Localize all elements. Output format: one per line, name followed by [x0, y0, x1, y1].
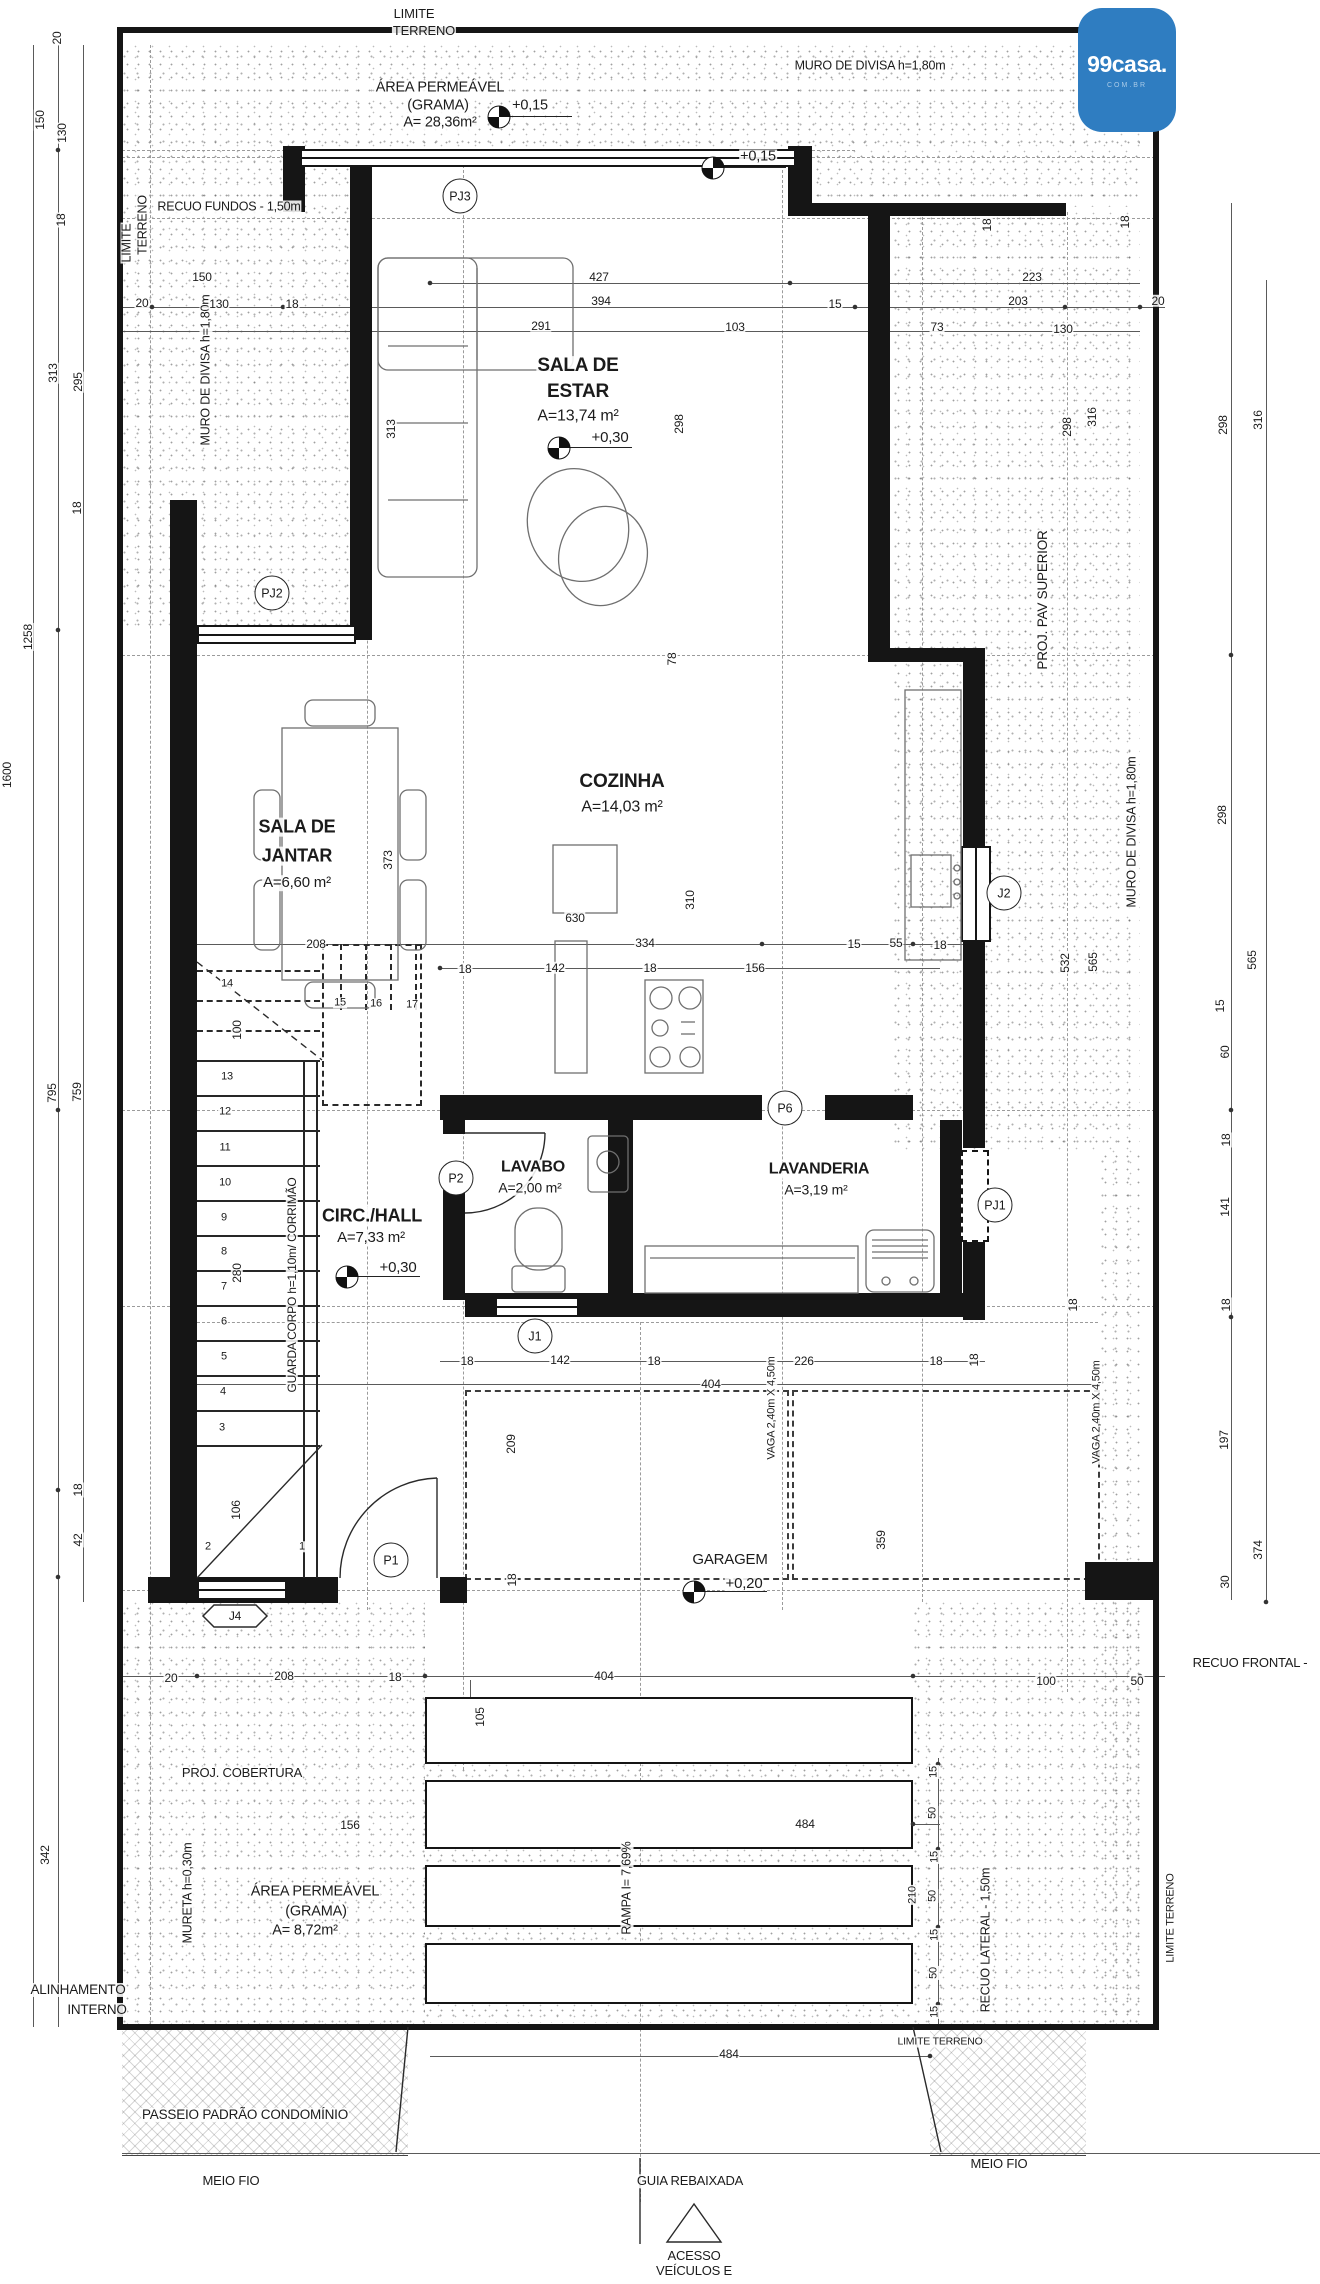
mureta: MURETA h=0,30m	[182, 1842, 195, 1945]
level-label: +0,20	[725, 1576, 764, 1592]
level-marker-tail	[570, 447, 632, 448]
stair-step-label: 17	[405, 999, 419, 1010]
level-marker-icon	[683, 1581, 706, 1604]
washer-icon	[866, 1230, 934, 1292]
level-marker-tail	[705, 1591, 767, 1592]
area-permeavel-top: (GRAMA)	[406, 98, 469, 113]
dimension-label: 18	[1067, 1298, 1079, 1313]
dimension-label: 18	[285, 298, 300, 310]
dimension-label: 130	[1052, 323, 1073, 335]
dimension-label: 18	[929, 1355, 944, 1367]
brand-name: 99casa.	[1087, 51, 1167, 78]
dimension-label: 50	[927, 1889, 938, 1903]
opening-tag-p6: P6	[768, 1091, 803, 1126]
dimension-label: 50	[927, 1806, 938, 1820]
dimension-label: 130	[208, 298, 229, 310]
dimension-label: 15	[928, 1765, 939, 1779]
level-label: +0,15	[739, 149, 777, 164]
dimension-label: 1600	[1, 761, 13, 789]
dimension-label: 298	[673, 413, 685, 434]
opening-tag-pj1: PJ1	[978, 1188, 1013, 1223]
stove-icon	[645, 980, 703, 1073]
stair-step-label: 15	[333, 997, 347, 1008]
dimension-label: 15	[929, 1928, 940, 1942]
dimension-label: 484	[794, 1818, 815, 1830]
dimension-label: 316	[1252, 409, 1264, 430]
dimension-label: 316	[1086, 406, 1098, 427]
dimension-label: 18	[643, 962, 658, 974]
dimension-label: 18	[1220, 1133, 1232, 1148]
room-circ-hall: CIRC./HALL	[321, 1207, 423, 1226]
alinhamento-interno: ALINHAMENTO	[29, 1983, 126, 1997]
dimension-label: 20	[51, 31, 63, 46]
dimension-label: 18	[968, 1353, 980, 1368]
opening-tag-pj3: PJ3	[443, 179, 478, 214]
room-cozinha-area: A=14,03 m²	[580, 800, 663, 817]
rug-icon	[513, 455, 643, 594]
guia-rebaixada: GUIA REBAIXADA	[636, 2174, 744, 2188]
stair-step-label: 6	[220, 1316, 228, 1327]
level-label: +0,30	[379, 1260, 418, 1276]
brand-tld: COM.BR	[1107, 82, 1147, 89]
stair-break-upper	[197, 962, 322, 1060]
dimension-label: 15	[847, 938, 862, 950]
dimension-label: 197	[1218, 1429, 1230, 1450]
dimension-label: 78	[666, 652, 678, 667]
floor-plan: 99casa. COM.BR LIMITETERRENOMURO DE DIVI…	[0, 0, 1320, 2284]
muro-divisa-top: MURO DE DIVISA h=1,80m	[794, 60, 947, 73]
dimension-label: 106	[230, 1499, 242, 1520]
dimension-label: 20	[1151, 295, 1166, 307]
stair-step-label: 7	[220, 1281, 228, 1292]
muro-divisa-left: MURO DE DIVISA h=1,80m	[200, 294, 213, 447]
acesso-veiculos: ACESSO	[667, 2249, 722, 2263]
dimension-label: 18	[506, 1573, 518, 1588]
sofa-icon	[378, 258, 573, 370]
access-triangle-icon	[667, 2204, 721, 2242]
stair-break-lower	[197, 1445, 322, 1578]
room-sala-estar: ESTAR	[546, 382, 610, 402]
area-permeavel-bottom: ÁREA PERMEÁVEL	[250, 1884, 381, 1899]
area-permeavel-bottom: (GRAMA)	[284, 1904, 347, 1919]
room-lavanderia: LAVANDERIA	[768, 1162, 871, 1179]
room-sala-jantar-area: A=6,60 m²	[262, 875, 332, 891]
dimension-label: 342	[39, 1844, 51, 1865]
stair-step-label: 8	[220, 1246, 228, 1257]
muro-divisa-right: MURO DE DIVISA h=1,80m	[1126, 756, 1139, 909]
dimension-label: 15	[828, 298, 843, 310]
dimension-label: 210	[907, 1885, 918, 1905]
dimension-label: 55	[889, 937, 904, 949]
area-permeavel-bottom: A= 8,72m²	[271, 1923, 339, 1938]
room-lavabo: LAVABO	[500, 1160, 566, 1177]
area-permeavel-top: ÁREA PERMEÁVEL	[375, 80, 506, 95]
dimension-label: 18	[55, 213, 67, 228]
kitchen-sink-icon	[911, 855, 951, 907]
opening-tag-p1: P1	[374, 1543, 409, 1578]
level-marker-tail	[358, 1276, 420, 1277]
dimension-label: 223	[1021, 271, 1042, 283]
meio-fio-right: MEIO FIO	[970, 2157, 1029, 2171]
stair-step-label: 13	[220, 1071, 234, 1082]
stair-step-label: 5	[220, 1351, 228, 1362]
dimension-label: 404	[593, 1670, 614, 1682]
dimension-label: 18	[1119, 215, 1131, 230]
level-marker-icon	[702, 157, 725, 180]
room-sala-jantar: JANTAR	[261, 847, 333, 866]
dimension-label: 18	[460, 1355, 475, 1367]
toilet-icon	[515, 1208, 562, 1270]
dimension-label: 103	[724, 321, 745, 333]
dimension-label: 156	[744, 962, 765, 974]
dimension-label: 404	[700, 1378, 721, 1390]
dimension-label: 18	[388, 1671, 403, 1683]
dimension-label: 100	[1035, 1675, 1056, 1687]
dimension-label: 298	[1216, 804, 1228, 825]
dimension-label: 208	[273, 1670, 294, 1682]
dimension-label: 73	[930, 321, 945, 333]
opening-tag-p2: P2	[439, 1161, 474, 1196]
dimension-label: 100	[231, 1019, 243, 1040]
level-label: +0,15	[511, 98, 549, 113]
dimension-label: 50	[928, 1966, 939, 1980]
window-tag-j4: J4	[228, 1610, 242, 1622]
dimension-label: 50	[1130, 1675, 1145, 1687]
stair-step-label: 12	[218, 1106, 232, 1117]
dimension-label: 18	[458, 963, 473, 975]
lavabo-sink-icon	[588, 1136, 628, 1192]
vaga-label: VAGA 2,40m X 4,50m	[1091, 1359, 1102, 1464]
room-sala-estar-area: A=13,74 m²	[536, 409, 619, 426]
dimension-label: 484	[718, 2048, 739, 2060]
dimension-label: 15	[1214, 999, 1226, 1014]
stair-step-label: 1	[298, 1541, 306, 1552]
meio-fio-left: MEIO FIO	[202, 2174, 261, 2188]
dimension-label: 310	[684, 889, 696, 910]
opening-tag-j1: J1	[518, 1319, 553, 1354]
dimension-label: 156	[339, 1819, 360, 1831]
kitchen-counter-icon	[905, 690, 961, 960]
dimension-label: 359	[875, 1529, 887, 1550]
opening-tag-pj2: PJ2	[255, 576, 290, 611]
dimension-label: 20	[135, 297, 150, 309]
dimension-label: 427	[588, 271, 609, 283]
dimension-label: 142	[544, 962, 565, 974]
dimension-label: 130	[56, 122, 68, 143]
level-marker-tail	[724, 167, 786, 168]
dimension-label: 565	[1246, 949, 1258, 970]
room-sala-jantar: SALA DE	[258, 818, 337, 837]
limite-terreno-top: TERRENO	[392, 24, 456, 38]
limite-terreno-left: TERRENO	[137, 194, 150, 256]
dimension-label: 141	[1219, 1196, 1231, 1217]
dimension-label: 532	[1059, 952, 1071, 973]
level-marker-icon	[548, 437, 571, 460]
dimension-label: 150	[191, 271, 212, 283]
dimension-label: 313	[385, 418, 397, 439]
dimension-label: 18	[933, 939, 948, 951]
dimension-label: 565	[1087, 951, 1099, 972]
stair-step-label: 11	[218, 1142, 231, 1153]
alinhamento-interno: INTERNO	[66, 2003, 127, 2017]
dimension-label: 203	[1007, 295, 1028, 307]
dimension-label: 295	[72, 371, 84, 392]
level-marker-icon	[488, 106, 511, 129]
limite-terreno-left: LIMITE	[121, 222, 134, 263]
stair-step-label: 2	[204, 1541, 212, 1552]
rampa: RAMPA I= 7,69%	[621, 1840, 634, 1935]
level-marker-tail	[510, 116, 572, 117]
acesso-veiculos: VEÍCULOS E	[655, 2264, 733, 2278]
dimension-label: 630	[564, 912, 585, 924]
dimension-label: 30	[1219, 1575, 1231, 1590]
dimension-label: 15	[929, 1850, 940, 1864]
opening-tag-j2: J2	[987, 876, 1022, 911]
level-marker-icon	[336, 1266, 359, 1289]
dimension-label: 226	[793, 1355, 814, 1367]
dimension-label: 298	[1217, 414, 1229, 435]
vaga-label: VAGA 2,40m X 4,50m	[766, 1355, 777, 1460]
guarda-corpo: GUARDA CORPO h=1,10m/ CORRIMÃO	[286, 1176, 298, 1393]
dimension-label: 298	[1061, 416, 1073, 437]
stair-step-label: 4	[219, 1386, 227, 1397]
dimension-label: 759	[71, 1081, 83, 1102]
dimension-label: 105	[474, 1706, 486, 1727]
stair-step-label: 14	[220, 978, 234, 989]
stair-step-label: 16	[369, 998, 383, 1009]
dimension-label: 280	[231, 1262, 243, 1283]
proj-cobertura: PROJ. COBERTURA	[181, 1766, 303, 1780]
dimension-label: 209	[505, 1433, 517, 1454]
dimension-label: 20	[164, 1672, 179, 1684]
limite-terreno-top: LIMITE	[393, 7, 436, 21]
passeio: PASSEIO PADRÃO CONDOMÍNIO	[141, 2108, 349, 2122]
dimension-label: 18	[1220, 1298, 1232, 1313]
room-garagem: GARAGEM	[691, 1552, 768, 1568]
dimension-label: 150	[34, 109, 46, 130]
dimension-label: 208	[305, 938, 326, 950]
dimension-label: 1258	[22, 623, 34, 651]
area-permeavel-top: A= 28,36m²	[402, 115, 477, 130]
room-lavabo-area: A=2,00 m²	[497, 1181, 562, 1196]
dimension-label: 394	[590, 295, 611, 307]
dimension-label: 313	[47, 362, 59, 383]
limite-terreno-bottom: LIMITE TERRENO	[896, 2037, 983, 2048]
brand-logo: 99casa. COM.BR	[1078, 8, 1176, 132]
room-circ-hall-area: A=7,33 m²	[336, 1230, 406, 1246]
room-lavanderia-area: A=3,19 m²	[783, 1183, 848, 1198]
dimension-label: 18	[647, 1355, 662, 1367]
recuo-fundos: RECUO FUNDOS - 1,50m	[156, 201, 301, 214]
dimension-label: 373	[382, 849, 394, 870]
dimension-label: 142	[549, 1354, 570, 1366]
dimension-label: 15	[929, 2005, 940, 2019]
room-cozinha: COZINHA	[578, 772, 665, 792]
stair-step-label: 10	[218, 1177, 232, 1188]
proj-pav-superior: PROJ. PAV SUPERIOR	[1036, 529, 1050, 670]
level-label: +0,30	[591, 430, 630, 446]
limite-terreno-right: LIMITE TERRENO	[1165, 1872, 1176, 1963]
recuo-frontal: RECUO FRONTAL -	[1192, 1656, 1309, 1670]
stair-step-label: 9	[220, 1212, 228, 1223]
dimension-label: 18	[981, 218, 993, 233]
dimension-label: 60	[1219, 1045, 1231, 1060]
recuo-lateral: RECUO LATERAL - 1,50m	[980, 1867, 993, 2013]
dimension-label: 42	[72, 1533, 84, 1548]
dimension-label: 374	[1252, 1539, 1264, 1560]
stair-step-label: 3	[218, 1422, 226, 1433]
dimension-label: 334	[634, 937, 655, 949]
room-sala-estar: SALA DE	[536, 356, 619, 376]
dimension-label: 291	[530, 320, 551, 332]
dimension-label: 18	[72, 1483, 84, 1498]
dimension-label: 795	[46, 1082, 58, 1103]
dimension-label: 18	[71, 501, 83, 516]
